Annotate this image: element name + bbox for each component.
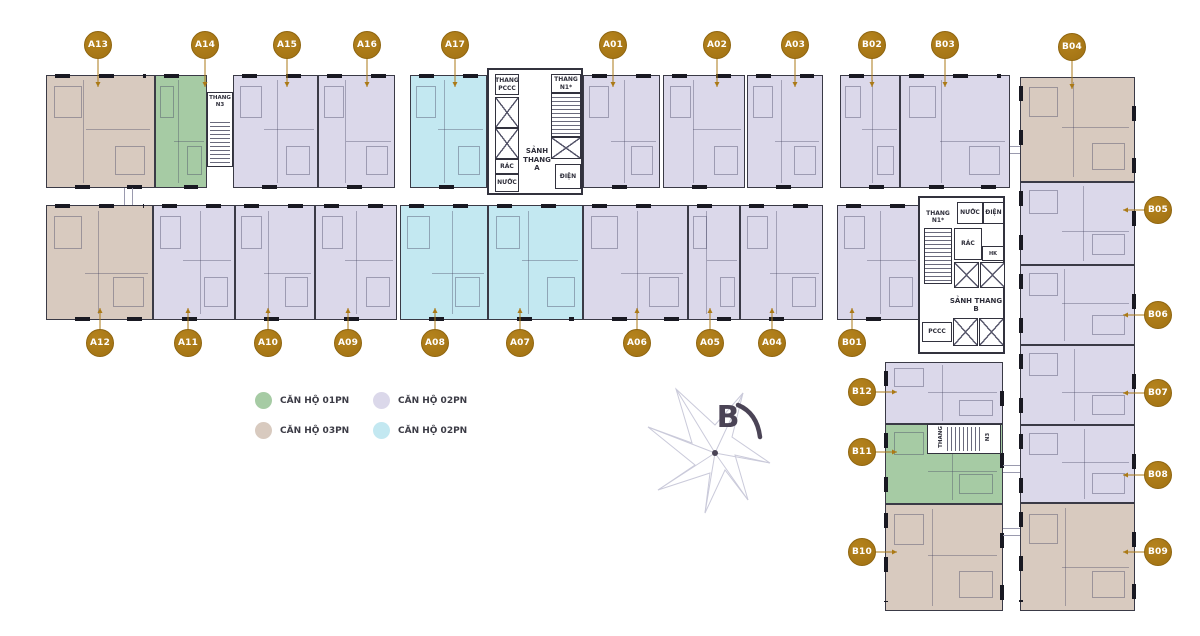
unit-marker-B11[interactable]: B11	[848, 438, 876, 466]
interior-detail	[200, 211, 201, 315]
interior-detail	[1029, 433, 1058, 456]
core-b-stair-label: THANG N1*	[922, 208, 954, 226]
unit-marker-A10[interactable]: A10	[254, 329, 282, 357]
unit-marker-A08[interactable]: A08	[421, 329, 449, 357]
interior-detail	[496, 216, 520, 249]
interior-detail	[204, 277, 228, 306]
interior-detail	[86, 129, 150, 130]
unit-B10[interactable]	[885, 504, 1003, 611]
interior-detail	[781, 80, 782, 182]
corridor-connector	[1003, 528, 1020, 536]
interior-detail	[1092, 315, 1125, 336]
core-a-pccc-shaft: THANG PCCC	[495, 74, 519, 95]
interior-detail	[862, 129, 897, 130]
interior-detail	[54, 86, 82, 118]
unit-marker-A13[interactable]: A13	[84, 31, 112, 59]
interior-detail	[356, 211, 357, 315]
interior-detail	[1062, 567, 1130, 568]
interior-detail	[115, 146, 146, 175]
unit-marker-B10[interactable]: B10	[848, 538, 876, 566]
interior-detail	[1083, 186, 1084, 261]
legend-swatch-02pn	[373, 392, 390, 409]
unit-A13[interactable]	[46, 75, 155, 188]
interior-detail	[322, 216, 343, 249]
stair-n3-a-label: THANG N3	[208, 95, 232, 109]
unit-marker-A12[interactable]: A12	[86, 329, 114, 357]
interior-detail	[941, 80, 942, 182]
core-b-water-room: NƯỚC	[957, 202, 983, 224]
interior-detail	[458, 146, 480, 175]
interior-detail	[792, 277, 816, 306]
interior-detail	[85, 273, 148, 274]
interior-detail	[867, 260, 916, 261]
legend-item-02pn-b: CĂN HỘ 02PN	[373, 422, 491, 439]
interior-detail	[649, 277, 679, 306]
interior-detail	[942, 365, 943, 420]
interior-detail	[894, 432, 924, 455]
core-a: THANG PCCC RÁC NƯỚC SẢNH THANG A THANG N…	[487, 68, 583, 195]
core-b-stairs	[924, 228, 952, 284]
core-b: NƯỚC ĐIỆN THANG N1* RÁC HK SẢNH THANG B …	[918, 196, 1005, 354]
interior-detail	[776, 211, 777, 315]
unit-B08[interactable]	[1020, 425, 1135, 503]
unit-A03[interactable]	[747, 75, 823, 188]
interior-detail	[693, 129, 741, 130]
unit-A16[interactable]	[318, 75, 395, 188]
interior-detail	[455, 277, 480, 306]
interior-detail	[178, 80, 179, 182]
interior-detail	[1029, 87, 1058, 117]
interior-detail	[753, 86, 773, 118]
interior-detail	[277, 80, 278, 182]
interior-detail	[432, 273, 484, 274]
unit-A10[interactable]	[235, 205, 315, 320]
floor-plan: A13A14A15A16A17A01A02A03B02B03B04B05B06B…	[0, 0, 1200, 636]
unit-marker-A07[interactable]: A07	[506, 329, 534, 357]
interior-detail	[160, 86, 174, 118]
legend-item-03pn: CĂN HỘ 03PN	[255, 422, 373, 439]
interior-detail	[522, 260, 578, 261]
core-b-elevator	[954, 262, 979, 288]
legend-swatch-01pn	[255, 392, 272, 409]
interior-detail	[407, 216, 430, 249]
interior-detail	[928, 471, 998, 472]
interior-detail	[286, 146, 310, 175]
unit-B07[interactable]	[1020, 345, 1135, 425]
interior-detail	[324, 86, 344, 118]
core-a-stairs	[551, 93, 581, 137]
interior-detail	[591, 216, 618, 249]
interior-detail	[1062, 127, 1130, 128]
corridor-connector	[1010, 146, 1020, 154]
interior-detail	[1073, 82, 1074, 177]
interior-detail	[872, 80, 873, 182]
unit-marker-A09[interactable]: A09	[334, 329, 362, 357]
interior-detail	[844, 216, 865, 249]
interior-detail	[1084, 429, 1085, 499]
interior-detail	[1065, 508, 1066, 606]
interior-detail	[1092, 234, 1125, 255]
unit-B05[interactable]	[1020, 182, 1135, 265]
interior-detail	[547, 277, 574, 306]
legend-item-02pn: CĂN HỘ 02PN	[373, 392, 491, 409]
compass-arrow	[738, 405, 760, 437]
interior-detail	[264, 273, 311, 274]
unit-marker-A03[interactable]: A03	[781, 31, 809, 59]
unit-marker-B05[interactable]: B05	[1144, 196, 1172, 224]
core-b-elevator	[979, 318, 1004, 346]
unit-B04[interactable]	[1020, 77, 1135, 182]
unit-marker-A17[interactable]: A17	[441, 31, 469, 59]
unit-marker-A04[interactable]: A04	[758, 329, 786, 357]
core-a-lobby-label: SẢNH THANG A	[521, 132, 553, 188]
interior-detail	[183, 260, 231, 261]
unit-B02[interactable]	[840, 75, 900, 188]
corridor-connector	[124, 188, 133, 205]
interior-detail	[1029, 353, 1058, 376]
unit-B09[interactable]	[1020, 503, 1135, 611]
interior-detail	[1092, 473, 1125, 493]
legend-label: CĂN HỘ 03PN	[280, 426, 349, 436]
unit-B03[interactable]	[900, 75, 1010, 188]
unit-A08[interactable]	[400, 205, 488, 320]
core-a-power-room: ĐIỆN	[555, 164, 581, 189]
unit-marker-B01[interactable]: B01	[838, 329, 866, 357]
interior-detail	[264, 129, 314, 130]
unit-A01[interactable]	[583, 75, 660, 188]
core-a-trash-room: RÁC	[495, 159, 519, 174]
interior-detail	[187, 146, 203, 175]
interior-detail	[1092, 571, 1125, 598]
interior-detail	[416, 86, 436, 118]
interior-detail	[1062, 303, 1130, 304]
interior-detail	[894, 368, 924, 386]
interior-detail	[160, 216, 181, 249]
stair-n3-a: THANG N3	[207, 92, 233, 167]
unit-marker-A01[interactable]: A01	[599, 31, 627, 59]
core-b-elevator	[980, 262, 1005, 288]
interior-detail	[345, 80, 346, 182]
interior-detail	[794, 146, 816, 175]
corridor-connector	[1003, 465, 1020, 473]
interior-detail	[889, 277, 913, 306]
core-b-elevator	[953, 318, 978, 346]
legend: CĂN HỘ 01PN CĂN HỘ 02PN CĂN HỘ 03PN CĂN …	[255, 392, 491, 439]
core-a-elevator	[551, 137, 581, 159]
unit-A11[interactable]	[153, 205, 235, 320]
interior-detail	[1062, 462, 1130, 463]
unit-A07[interactable]	[488, 205, 583, 320]
interior-detail	[268, 211, 269, 315]
legend-swatch-02pn-b	[373, 422, 390, 439]
interior-detail	[714, 146, 738, 175]
interior-detail	[969, 146, 1000, 175]
unit-A14[interactable]	[155, 75, 207, 188]
core-a-elevator	[495, 128, 519, 159]
interior-detail	[346, 141, 391, 142]
unit-A02[interactable]	[663, 75, 745, 188]
stair-n3-b-label2: N3	[985, 433, 991, 441]
interior-detail	[366, 277, 390, 306]
interior-detail	[940, 141, 1005, 142]
unit-marker-A05[interactable]: A05	[696, 329, 724, 357]
interior-detail	[1092, 143, 1125, 170]
interior-detail	[932, 509, 933, 606]
unit-marker-A06[interactable]: A06	[623, 329, 651, 357]
interior-detail	[894, 514, 924, 544]
unit-marker-B12[interactable]: B12	[848, 378, 876, 406]
interior-detail	[1029, 190, 1058, 214]
unit-marker-B06[interactable]: B06	[1144, 301, 1172, 329]
interior-detail	[1064, 269, 1065, 341]
interior-detail	[747, 216, 768, 249]
interior-detail	[54, 216, 81, 249]
interior-detail	[98, 211, 99, 315]
interior-detail	[241, 216, 262, 249]
unit-marker-B02[interactable]: B02	[858, 31, 886, 59]
core-b-power-room: ĐIỆN	[983, 202, 1004, 224]
interior-detail	[452, 211, 453, 315]
interior-detail	[1029, 514, 1058, 545]
interior-detail	[637, 211, 638, 315]
interior-detail	[693, 80, 694, 182]
unit-A05[interactable]	[688, 205, 740, 320]
interior-detail	[928, 392, 998, 393]
core-a-water-room: NƯỚC	[495, 174, 519, 192]
interior-detail	[959, 571, 992, 598]
interior-detail	[366, 146, 388, 175]
interior-detail	[959, 474, 992, 495]
interior-detail	[845, 86, 861, 118]
interior-detail	[444, 80, 445, 182]
unit-A04[interactable]	[740, 205, 823, 320]
core-a-elevator	[495, 97, 519, 128]
unit-marker-A15[interactable]: A15	[273, 31, 301, 59]
unit-A12[interactable]	[46, 205, 153, 320]
interior-detail	[113, 277, 143, 306]
interior-detail	[285, 277, 308, 306]
interior-detail	[880, 211, 881, 315]
interior-detail	[1074, 349, 1075, 421]
interior-detail	[1092, 395, 1125, 416]
interior-detail	[720, 277, 736, 306]
interior-detail	[1029, 273, 1058, 296]
unit-B12[interactable]	[885, 362, 1003, 424]
unit-marker-A02[interactable]: A02	[703, 31, 731, 59]
interior-detail	[345, 260, 393, 261]
core-a-stair-label: THANG N1*	[551, 74, 581, 93]
stair-n3-b: THANG N3	[927, 424, 1001, 454]
interior-detail	[83, 80, 84, 182]
core-b-hk-room: HK	[982, 246, 1004, 261]
interior-detail	[775, 141, 819, 142]
compass-rose: B	[640, 385, 810, 535]
legend-label: CĂN HỘ 02PN	[398, 396, 467, 406]
legend-label: CĂN HỘ 02PN	[398, 426, 467, 436]
compass-center-dot	[712, 450, 718, 456]
interior-detail	[928, 555, 998, 556]
interior-detail	[770, 273, 819, 274]
core-b-lobby-label: SẢNH THANG B	[948, 292, 1004, 318]
interior-detail	[670, 86, 691, 118]
stair-n3-b-label: THANG	[938, 426, 944, 448]
legend-swatch-03pn	[255, 422, 272, 439]
unit-marker-A11[interactable]: A11	[174, 329, 202, 357]
unit-marker-B04[interactable]: B04	[1058, 33, 1086, 61]
unit-marker-B09[interactable]: B09	[1144, 538, 1172, 566]
unit-A17[interactable]	[410, 75, 487, 188]
interior-detail	[589, 86, 609, 118]
interior-detail	[528, 211, 529, 315]
core-b-pccc-room: PCCC	[922, 322, 952, 342]
interior-detail	[1062, 392, 1130, 393]
interior-detail	[909, 86, 937, 118]
unit-marker-A16[interactable]: A16	[353, 31, 381, 59]
core-b-trash-room: RÁC	[954, 228, 982, 260]
interior-detail	[959, 400, 992, 416]
unit-marker-B03[interactable]: B03	[931, 31, 959, 59]
unit-A06[interactable]	[583, 205, 688, 320]
unit-A15[interactable]	[233, 75, 318, 188]
unit-marker-B08[interactable]: B08	[1144, 461, 1172, 489]
unit-marker-B07[interactable]: B07	[1144, 379, 1172, 407]
interior-detail	[611, 141, 656, 142]
interior-detail	[877, 146, 895, 175]
interior-detail	[631, 146, 653, 175]
unit-B01[interactable]	[837, 205, 920, 320]
interior-detail	[438, 129, 483, 130]
interior-detail	[621, 273, 683, 274]
legend-label: CĂN HỘ 01PN	[280, 396, 349, 406]
interior-detail	[1062, 231, 1130, 232]
interior-detail	[707, 260, 737, 261]
interior-detail	[240, 86, 262, 118]
unit-B06[interactable]	[1020, 265, 1135, 345]
interior-detail	[624, 80, 625, 182]
interior-detail	[174, 141, 204, 142]
interior-detail	[693, 216, 707, 249]
legend-item-01pn: CĂN HỘ 01PN	[255, 392, 373, 409]
unit-A09[interactable]	[315, 205, 397, 320]
unit-marker-A14[interactable]: A14	[191, 31, 219, 59]
